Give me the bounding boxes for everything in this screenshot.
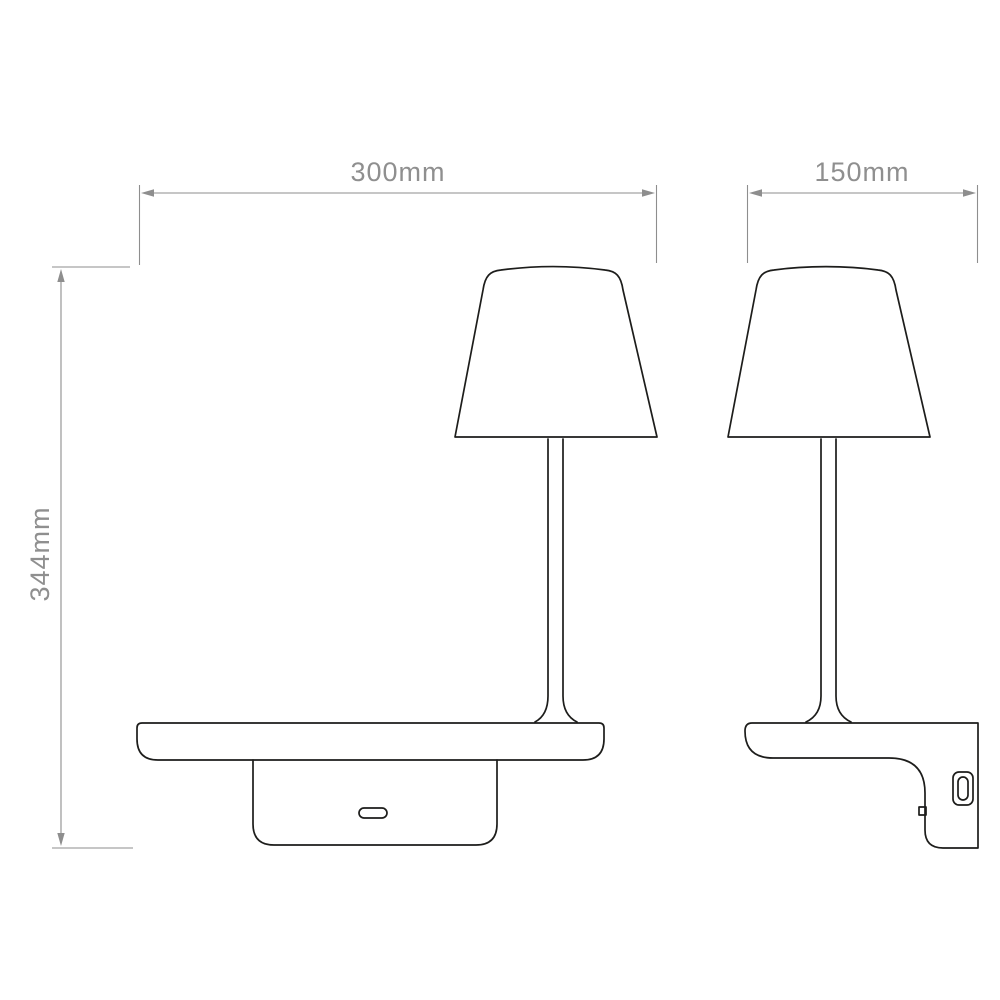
dimension-drawing: 300mm 150mm 344mm [0, 0, 1000, 1000]
dimension-depth: 150mm [748, 157, 978, 263]
side-view [728, 267, 978, 848]
drawing-svg: 300mm 150mm 344mm [0, 0, 1000, 1000]
front-view [137, 267, 657, 845]
depth-dimension-label: 150mm [814, 157, 909, 187]
front-stem-right-edge [563, 439, 577, 722]
arrow-left-icon [749, 189, 762, 196]
switch-rocker-icon [958, 777, 968, 800]
arrow-up-icon [57, 269, 64, 282]
front-shelf [137, 723, 604, 760]
side-stem-right-edge [836, 439, 851, 722]
width-dimension-label: 300mm [350, 157, 445, 187]
arrow-right-icon [642, 189, 655, 196]
arrow-left-icon [141, 189, 154, 196]
side-stem-left-edge [806, 439, 821, 722]
front-lampshade [455, 267, 657, 437]
dimension-width: 300mm [140, 157, 657, 265]
front-stem-left-edge [535, 439, 548, 722]
dimension-height: 344mm [25, 267, 133, 848]
arrow-down-icon [57, 833, 64, 846]
front-driver-box [253, 760, 497, 845]
height-dimension-label: 344mm [25, 506, 55, 601]
side-wall-bracket [745, 723, 978, 848]
arrow-right-icon [963, 189, 976, 196]
side-lampshade [728, 267, 930, 437]
usb-port-icon [359, 808, 387, 818]
